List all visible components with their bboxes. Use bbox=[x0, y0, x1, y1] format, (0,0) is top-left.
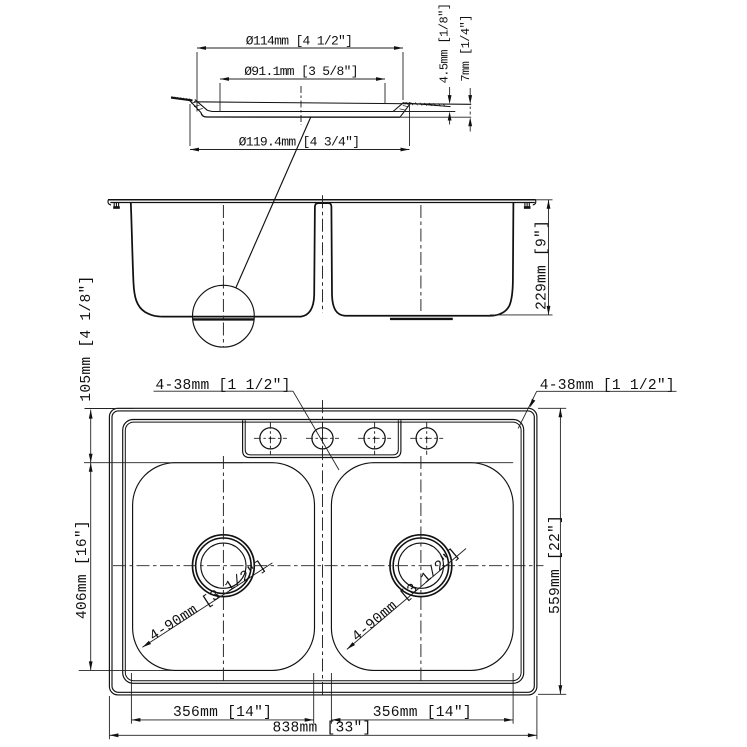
svg-text:105mm [4 1/8″]: 105mm [4 1/8″] bbox=[79, 276, 95, 402]
svg-text:7mm [1/4″]: 7mm [1/4″] bbox=[459, 15, 473, 82]
svg-text:559mm [22″]: 559mm [22″] bbox=[548, 515, 564, 614]
svg-text:Ø91.1mm [3 5/8″]: Ø91.1mm [3 5/8″] bbox=[244, 64, 358, 79]
svg-text:229mm [9″]: 229mm [9″] bbox=[534, 220, 550, 310]
svg-text:838mm [33″]: 838mm [33″] bbox=[272, 721, 371, 737]
svg-text:406mm [16″]: 406mm [16″] bbox=[75, 520, 91, 619]
svg-text:Ø119.4mm [4 3/4″]: Ø119.4mm [4 3/4″] bbox=[239, 134, 360, 149]
svg-text:4-38mm [1 1/2″]: 4-38mm [1 1/2″] bbox=[156, 378, 291, 394]
svg-text:356mm [14″]: 356mm [14″] bbox=[173, 705, 272, 721]
svg-text:4.5mm [1/8″]: 4.5mm [1/8″] bbox=[437, 4, 451, 84]
svg-text:356mm [14″]: 356mm [14″] bbox=[373, 705, 472, 721]
svg-text:Ø114mm [4 1/2″]: Ø114mm [4 1/2″] bbox=[246, 33, 353, 48]
